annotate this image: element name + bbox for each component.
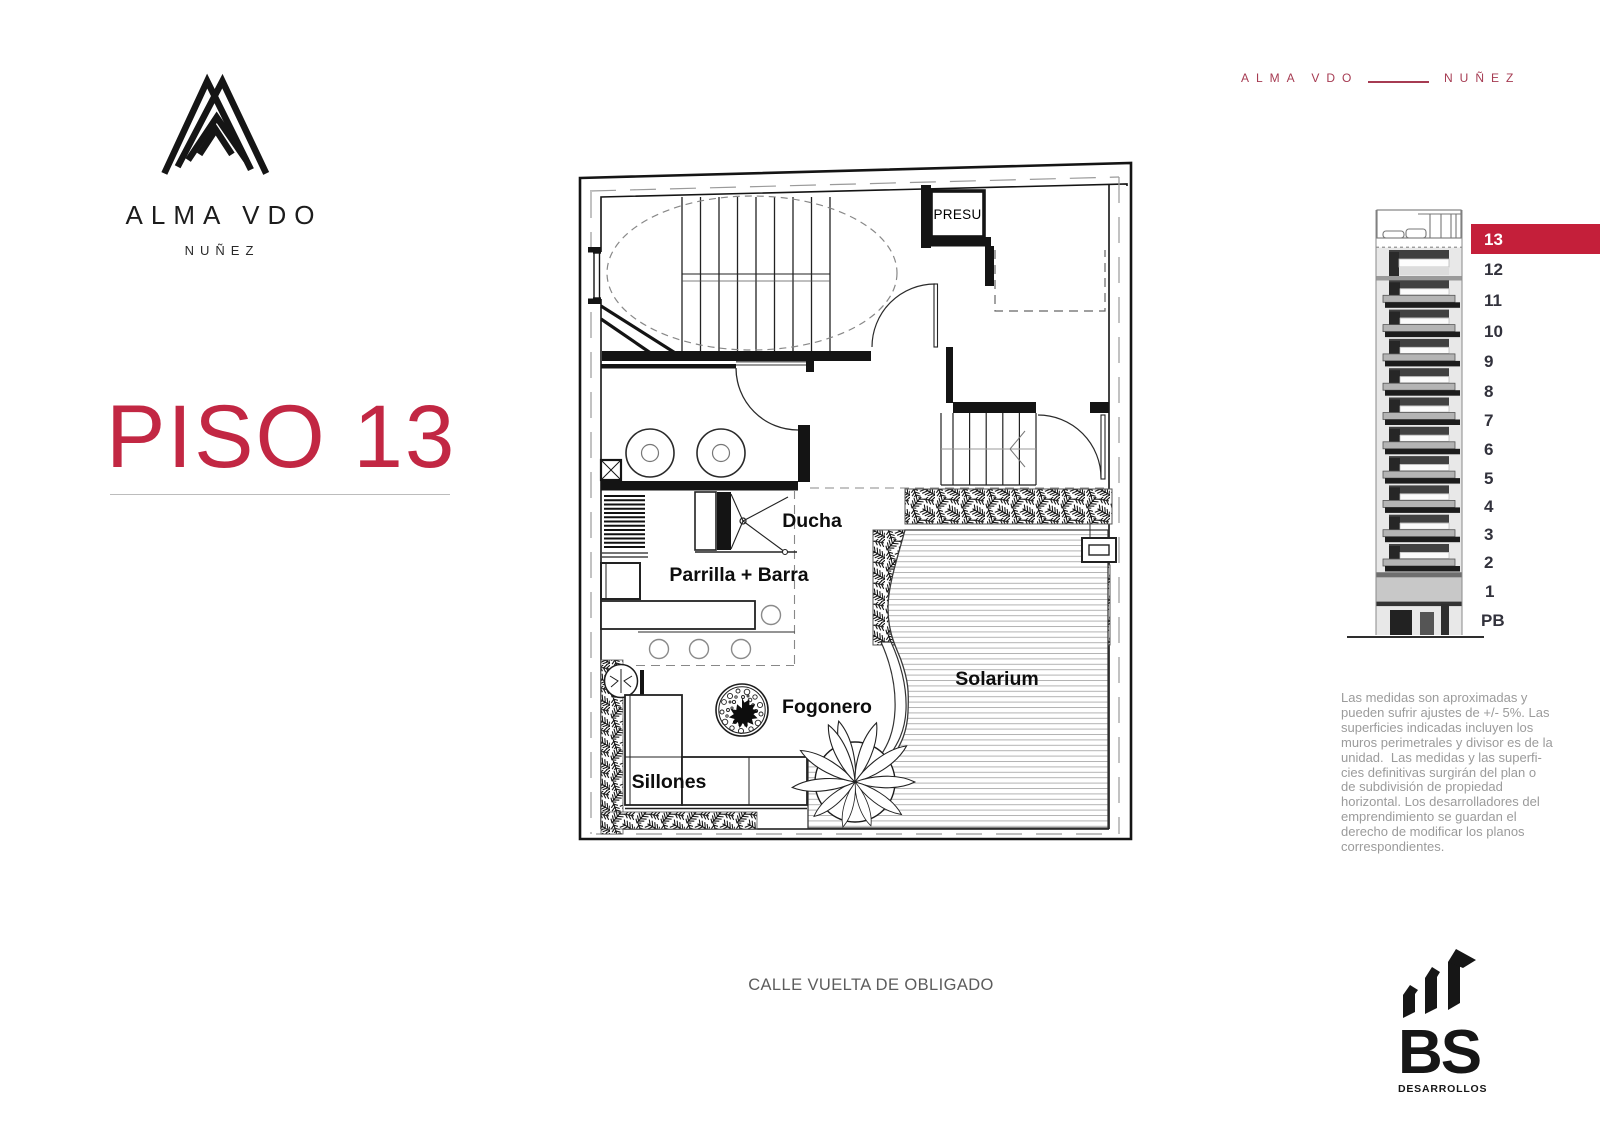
svg-text:BS: BS bbox=[1398, 1018, 1480, 1087]
svg-text:Fogonero: Fogonero bbox=[782, 696, 872, 718]
svg-text:Sillones: Sillones bbox=[632, 771, 707, 793]
svg-text:PRESU: PRESU bbox=[933, 207, 981, 222]
svg-text:Solarium: Solarium bbox=[955, 668, 1038, 690]
svg-text:DESARROLLOS: DESARROLLOS bbox=[1398, 1083, 1487, 1095]
svg-text:Parrilla + Barra: Parrilla + Barra bbox=[669, 564, 808, 586]
svg-text:Ducha: Ducha bbox=[782, 510, 842, 532]
